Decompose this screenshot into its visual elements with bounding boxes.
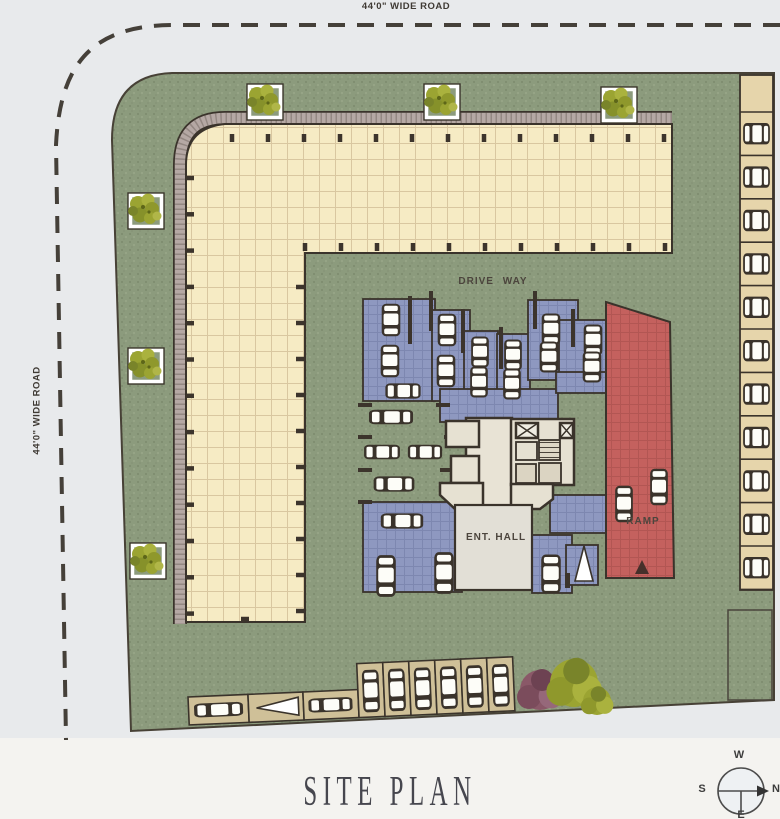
car-icon xyxy=(376,555,396,597)
column-dot xyxy=(266,134,271,142)
tree-planter xyxy=(601,87,637,123)
column-dot xyxy=(186,394,194,399)
column-dot xyxy=(186,212,194,217)
driveway-label: DRIVE WAY xyxy=(433,276,553,287)
stall-divider xyxy=(436,403,450,407)
column-dot xyxy=(482,134,487,142)
car-icon xyxy=(584,325,603,356)
column-dot xyxy=(519,243,524,251)
column-dot xyxy=(186,611,194,616)
car-icon xyxy=(743,210,770,231)
column-dot xyxy=(296,537,304,542)
building-core xyxy=(440,418,574,510)
site-plan-canvas: 44'0" WIDE ROAD 44'0" WIDE ROAD DRIVE WA… xyxy=(0,0,780,819)
column-dot xyxy=(446,134,451,142)
car-icon xyxy=(381,345,400,378)
column-dot xyxy=(296,357,304,362)
car-icon xyxy=(743,557,770,578)
compass-north-label: N xyxy=(768,783,780,795)
car-icon xyxy=(743,427,770,448)
car-icon xyxy=(438,314,457,347)
stall-divider xyxy=(358,403,372,407)
car-icon xyxy=(369,410,413,425)
car-icon xyxy=(437,355,456,388)
road-label-top: 44'0" WIDE ROAD xyxy=(306,1,506,12)
stall-divider xyxy=(461,309,465,353)
column-dot xyxy=(186,575,194,580)
column-dot xyxy=(296,321,304,326)
core-room xyxy=(446,421,479,447)
car-icon xyxy=(743,123,770,144)
column-dot xyxy=(303,243,308,251)
ramp-label: RAMP xyxy=(613,516,673,527)
column-dot xyxy=(555,243,560,251)
car-icon xyxy=(743,297,770,318)
car-icon xyxy=(743,383,770,404)
car-icon xyxy=(540,342,559,373)
column-dot xyxy=(554,134,559,142)
car-icon xyxy=(503,369,521,400)
car-icon xyxy=(471,337,489,368)
column-dot xyxy=(626,134,631,142)
stall-divider xyxy=(429,291,433,331)
car-icon xyxy=(385,383,420,398)
car-icon xyxy=(364,445,400,460)
column-dot xyxy=(241,617,249,622)
column-dot xyxy=(186,357,194,362)
stall-divider xyxy=(408,296,412,344)
column-dot xyxy=(296,465,304,470)
parking-zone xyxy=(550,495,606,533)
car-icon xyxy=(374,476,415,491)
stall-divider xyxy=(358,435,372,439)
column-dot xyxy=(186,176,194,181)
column-dot xyxy=(296,609,304,614)
car-icon xyxy=(650,469,668,506)
column-dot xyxy=(339,243,344,251)
tree-planter xyxy=(130,543,166,579)
column-dot xyxy=(410,134,415,142)
car-icon xyxy=(382,304,401,337)
core-room xyxy=(539,463,561,483)
stall-divider xyxy=(499,327,503,369)
core-room xyxy=(451,456,479,483)
core-room xyxy=(516,442,537,460)
car-icon xyxy=(362,669,381,712)
car-icon xyxy=(583,352,602,383)
car-icon xyxy=(381,513,423,528)
column-dot xyxy=(411,243,416,251)
column-dot xyxy=(186,466,194,471)
car-icon xyxy=(492,664,511,707)
column-dot xyxy=(186,430,194,435)
car-icon xyxy=(504,340,522,371)
column-dot xyxy=(302,134,307,142)
road-label-left: 44'0" WIDE ROAD xyxy=(32,346,43,476)
stairs xyxy=(539,440,560,460)
parking-stall-strip xyxy=(740,75,773,590)
column-dot xyxy=(374,134,379,142)
column-dot xyxy=(296,393,304,398)
car-icon xyxy=(541,554,561,593)
car-icon xyxy=(743,340,770,361)
street-parking-column xyxy=(740,75,773,590)
stall-divider xyxy=(358,500,372,504)
column-dot xyxy=(186,539,194,544)
compass-east-label: E xyxy=(733,809,749,819)
car-icon xyxy=(308,697,353,713)
column-dot xyxy=(186,285,194,290)
car-icon xyxy=(542,314,561,345)
column-dot xyxy=(663,243,668,251)
tree-planter xyxy=(128,193,164,229)
core-room xyxy=(516,464,536,483)
column-dot xyxy=(591,243,596,251)
entrance-hall xyxy=(455,505,532,590)
tree-planter xyxy=(247,84,283,120)
column-dot xyxy=(590,134,595,142)
column-dot xyxy=(483,243,488,251)
stall-divider xyxy=(533,291,537,329)
tree-planter xyxy=(128,348,164,384)
column-dot xyxy=(296,285,304,290)
car-icon xyxy=(470,367,488,398)
column-dot xyxy=(296,501,304,506)
column-dot xyxy=(627,243,632,251)
column-dot xyxy=(338,134,343,142)
column-dot xyxy=(186,248,194,253)
column-dot xyxy=(662,134,667,142)
column-dot xyxy=(186,502,194,507)
car-icon xyxy=(743,470,770,491)
column-dot xyxy=(296,573,304,578)
tree-planter xyxy=(424,84,460,120)
page-title: SITE PLAN xyxy=(270,768,509,816)
car-icon xyxy=(743,166,770,187)
ramp-area xyxy=(606,302,674,578)
car-icon xyxy=(414,667,433,710)
site-plan-drawing xyxy=(0,0,780,819)
column-dot xyxy=(230,134,235,142)
compass-south-label: S xyxy=(694,783,710,795)
car-icon xyxy=(408,445,442,460)
stall-divider xyxy=(571,309,575,347)
column-dot xyxy=(375,243,380,251)
column-dot xyxy=(518,134,523,142)
car-icon xyxy=(743,253,770,274)
car-icon xyxy=(466,665,485,708)
car-icon xyxy=(434,552,454,594)
entrance-hall-label: ENT. HALL xyxy=(456,532,536,543)
column-dot xyxy=(186,321,194,326)
compass-west-label: W xyxy=(731,749,747,761)
column-dot xyxy=(296,429,304,434)
car-icon xyxy=(194,702,243,718)
car-icon xyxy=(743,514,770,535)
column-dot xyxy=(447,243,452,251)
stall-divider xyxy=(358,468,372,472)
stall-divider xyxy=(565,573,570,588)
car-icon xyxy=(388,668,407,711)
car-icon xyxy=(440,666,459,709)
